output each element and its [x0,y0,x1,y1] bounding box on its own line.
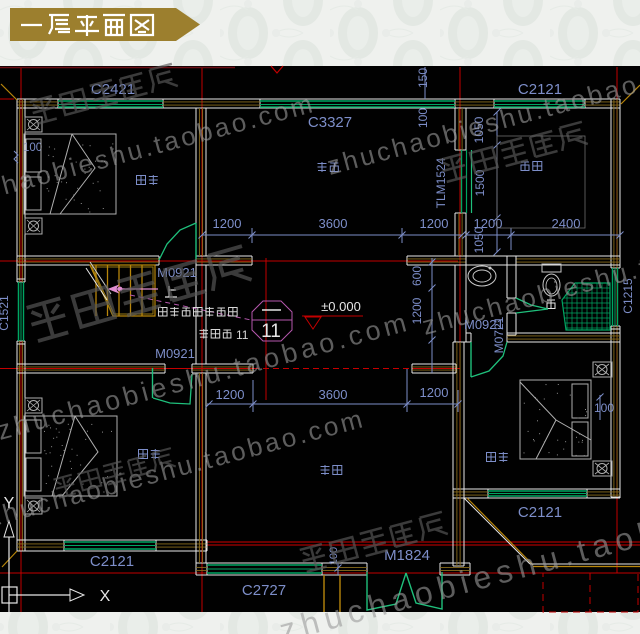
svg-text:1200: 1200 [213,216,242,231]
svg-text:11: 11 [236,328,249,342]
svg-text:3600: 3600 [319,387,348,402]
svg-text:100: 100 [594,401,614,415]
svg-text:M0921: M0921 [155,346,195,361]
svg-text:2400: 2400 [552,216,581,231]
svg-text:±0.000: ±0.000 [321,299,361,314]
svg-text:1200: 1200 [420,216,449,231]
svg-text:M1824: M1824 [384,547,430,564]
svg-text:11: 11 [261,321,281,342]
svg-text:C2121: C2121 [518,504,562,521]
svg-text:C1521: C1521 [0,295,11,331]
svg-text:150: 150 [416,68,430,88]
svg-text:X: X [100,588,111,605]
svg-text:600: 600 [410,266,424,286]
svg-text:1200: 1200 [216,387,245,402]
svg-text:3600: 3600 [319,216,348,231]
svg-text:1200: 1200 [420,385,449,400]
svg-text:C2121: C2121 [90,553,134,570]
svg-text:C2727: C2727 [242,582,286,599]
svg-text:1050: 1050 [472,226,486,253]
